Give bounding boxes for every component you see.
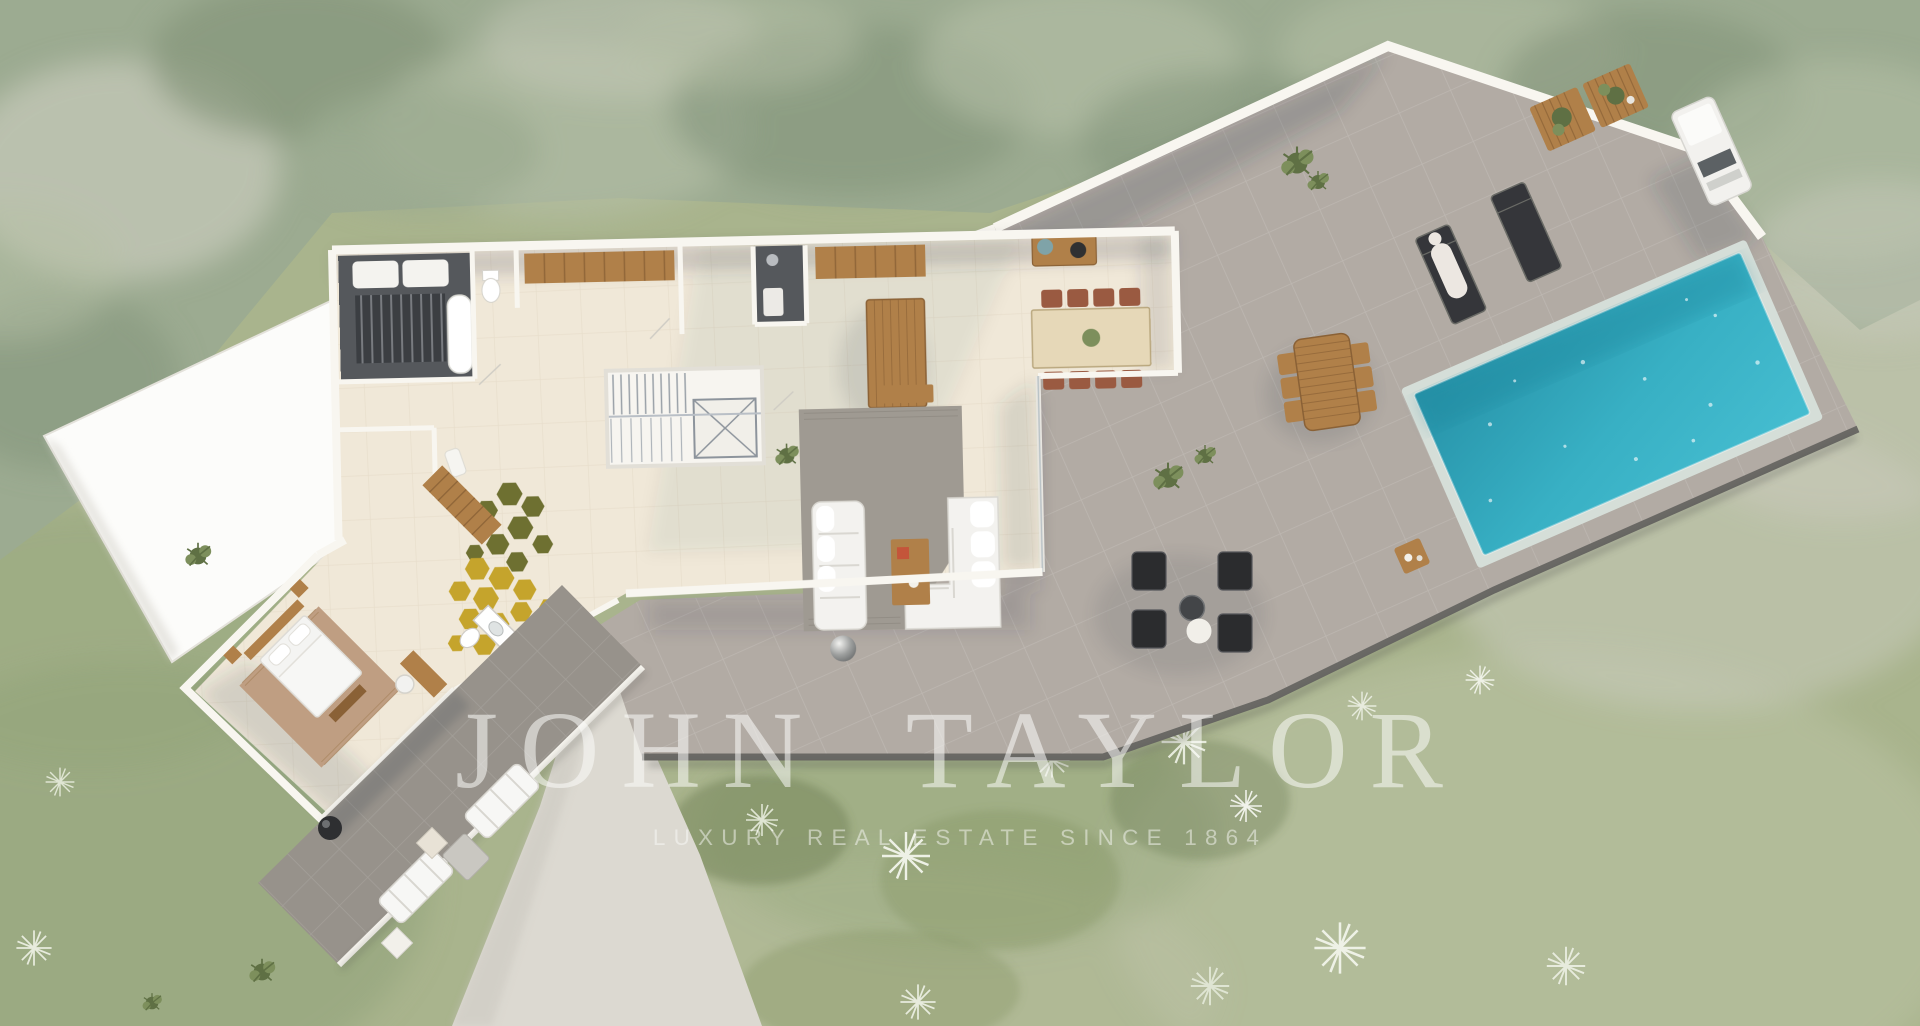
watermark-tagline: LUXURY REAL ESTATE SINCE 1864 bbox=[653, 825, 1267, 850]
toilet bbox=[482, 270, 501, 302]
bbq-counter bbox=[1032, 235, 1097, 266]
sideboard bbox=[881, 384, 933, 403]
wardrobe bbox=[524, 250, 675, 283]
floorplan-render: JOHN TAYLOR LUXURY REAL ESTATE SINCE 186… bbox=[0, 0, 1920, 1026]
scene-canvas: JOHN TAYLOR LUXURY REAL ESTATE SINCE 186… bbox=[0, 0, 1920, 1026]
sofa-left bbox=[812, 501, 867, 630]
watermark-brand: JOHN TAYLOR bbox=[455, 689, 1465, 811]
coffee-table bbox=[891, 539, 930, 606]
bathtub bbox=[447, 295, 473, 374]
shower-room bbox=[753, 245, 807, 324]
fire-bowl bbox=[318, 816, 342, 840]
staircase bbox=[606, 367, 764, 467]
utility-room bbox=[338, 253, 475, 382]
